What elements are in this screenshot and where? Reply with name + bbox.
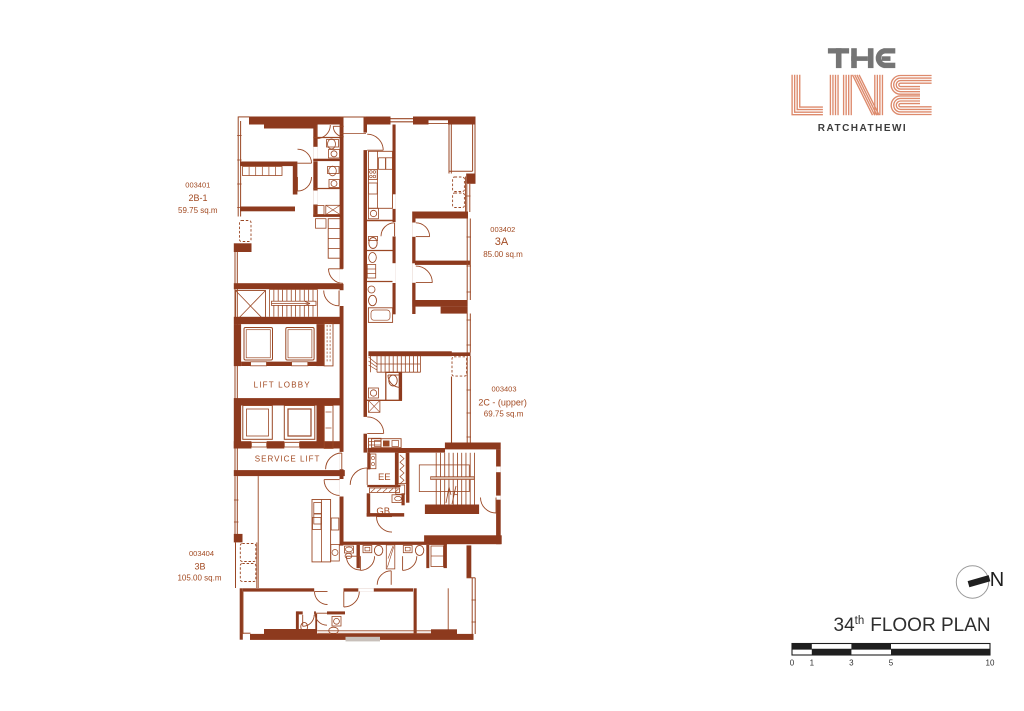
svg-text:003401: 003401 [185, 181, 210, 190]
svg-text:EE: EE [378, 472, 391, 483]
svg-text:2C - (upper): 2C - (upper) [478, 397, 527, 407]
svg-text:105.00 sq.m: 105.00 sq.m [177, 574, 221, 583]
svg-text:003404: 003404 [189, 549, 214, 558]
svg-text:1: 1 [810, 659, 815, 668]
svg-text:34thFLOOR PLAN: 34thFLOOR PLAN [834, 615, 991, 636]
svg-text:RATCHATHEWI: RATCHATHEWI [818, 123, 907, 134]
svg-text:003402: 003402 [490, 225, 515, 234]
svg-text:GB: GB [376, 506, 390, 517]
svg-text:59.75 sq.m: 59.75 sq.m [178, 206, 218, 215]
svg-text:2B-1: 2B-1 [188, 193, 207, 203]
svg-text:3B: 3B [194, 562, 205, 572]
svg-text:3A: 3A [495, 236, 509, 248]
svg-text:5: 5 [889, 659, 894, 668]
svg-text:85.00 sq.m: 85.00 sq.m [483, 250, 523, 259]
svg-text:3: 3 [849, 659, 854, 668]
svg-text:10: 10 [986, 659, 995, 668]
svg-text:69.75 sq.m: 69.75 sq.m [484, 409, 524, 418]
svg-text:LIFT LOBBY: LIFT LOBBY [254, 380, 311, 389]
svg-text:003403: 003403 [491, 385, 516, 394]
svg-text:N: N [990, 569, 1004, 591]
svg-text:0: 0 [790, 659, 795, 668]
svg-text:SERVICE LIFT: SERVICE LIFT [255, 454, 321, 463]
